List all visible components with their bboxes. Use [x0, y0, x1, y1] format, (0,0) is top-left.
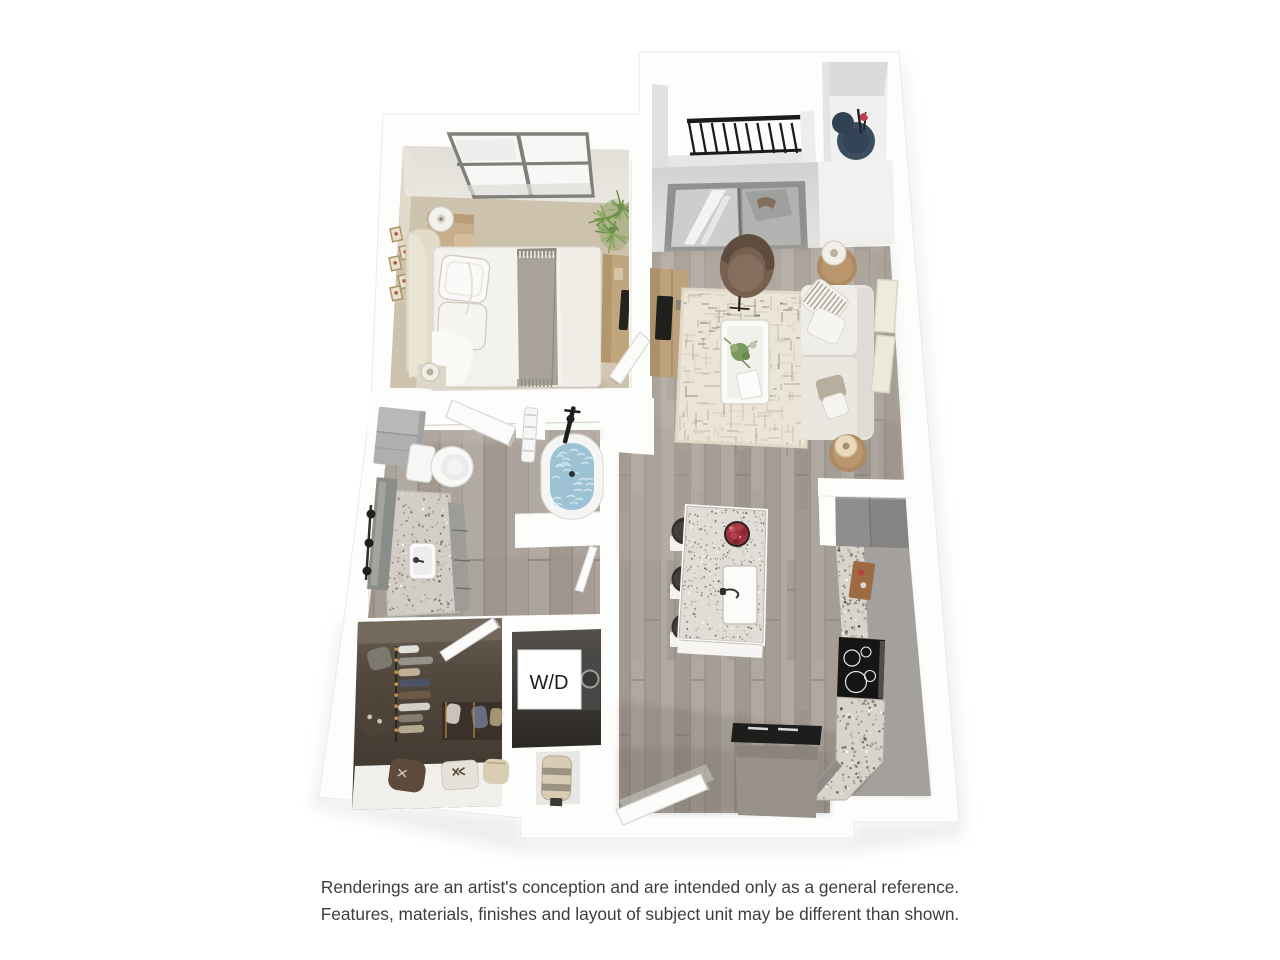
svg-text:W/D: W/D — [530, 672, 569, 694]
svg-text:Renderings are an artist's con: Renderings are an artist's conception an… — [321, 877, 959, 897]
svg-text:Features, materials, finishes: Features, materials, finishes and layout… — [321, 904, 959, 924]
